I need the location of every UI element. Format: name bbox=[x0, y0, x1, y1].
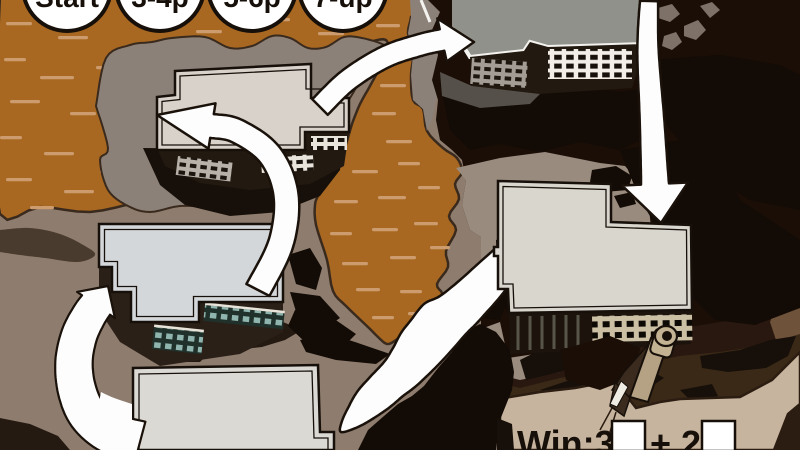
svg-text:+ 2: + 2 bbox=[650, 423, 701, 450]
svg-text:3-4p: 3-4p bbox=[131, 0, 189, 13]
svg-text:Start: Start bbox=[35, 0, 99, 13]
svg-text:5-6p: 5-6p bbox=[223, 0, 281, 13]
svg-text:7-up: 7-up bbox=[313, 0, 372, 13]
svg-text:Win:3: Win:3 bbox=[517, 423, 615, 450]
